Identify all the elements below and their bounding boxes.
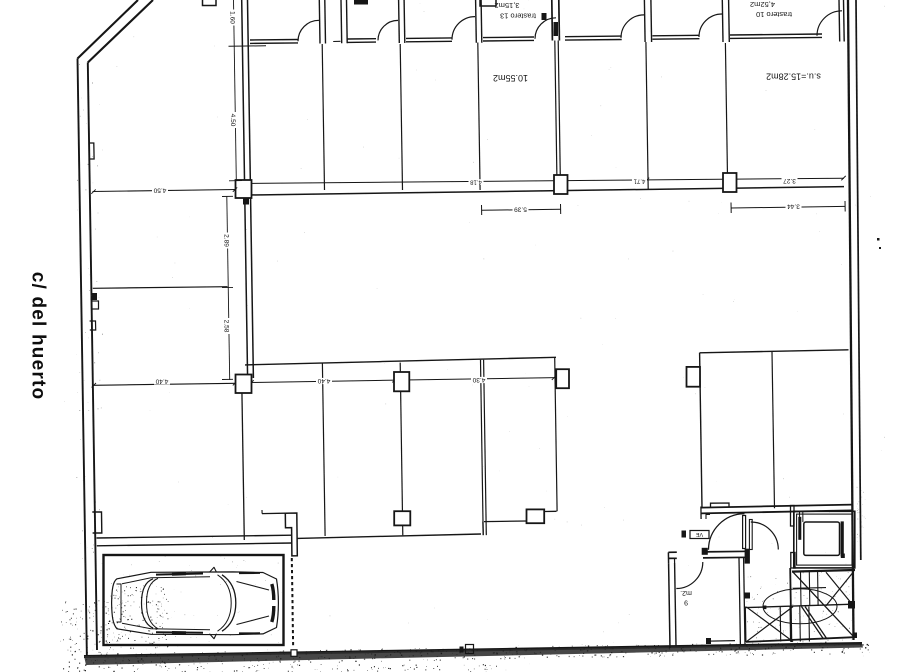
svg-text:trastero 13: trastero 13 bbox=[500, 11, 536, 20]
svg-text:4.40: 4.40 bbox=[155, 378, 168, 385]
svg-text:4.71: 4.71 bbox=[633, 177, 645, 183]
svg-text:5.39: 5.39 bbox=[514, 206, 527, 213]
svg-text:10.55m2: 10.55m2 bbox=[493, 73, 528, 83]
svg-text:2.89: 2.89 bbox=[223, 234, 230, 247]
svg-text:m2.: m2. bbox=[680, 589, 692, 596]
svg-text:4,52m2: 4,52m2 bbox=[750, 0, 775, 9]
svg-text:9: 9 bbox=[684, 599, 688, 606]
svg-text:4.50: 4.50 bbox=[229, 114, 236, 127]
svg-text:4.50: 4.50 bbox=[153, 187, 166, 194]
svg-text:VE: VE bbox=[696, 531, 704, 537]
svg-text:3,15m2: 3,15m2 bbox=[494, 1, 519, 10]
svg-text:3.27: 3.27 bbox=[783, 177, 796, 184]
svg-text:4.30: 4.30 bbox=[472, 376, 485, 383]
svg-text:trastero 10: trastero 10 bbox=[756, 10, 792, 19]
svg-text:s.u.=15.28m2: s.u.=15.28m2 bbox=[766, 72, 821, 82]
svg-text:3.44: 3.44 bbox=[787, 203, 800, 210]
svg-text:4.18: 4.18 bbox=[470, 178, 482, 184]
svg-text:4.40: 4.40 bbox=[317, 377, 330, 384]
svg-text:1.60: 1.60 bbox=[229, 11, 236, 24]
svg-text:2.58: 2.58 bbox=[223, 320, 230, 333]
svg-text:c/ del huerto: c/ del huerto bbox=[27, 272, 48, 401]
